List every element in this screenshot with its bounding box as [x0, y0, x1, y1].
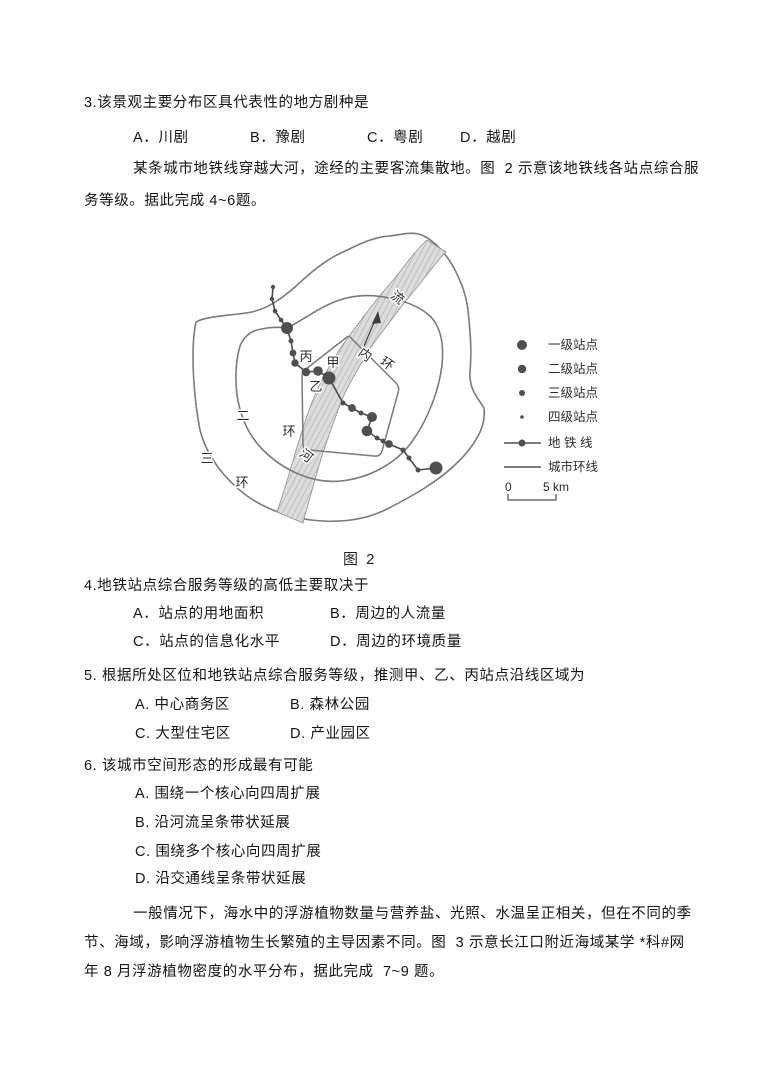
question-3-text: 3.该景观主要分布区具代表性的地方剧种是 — [84, 95, 369, 112]
q5-option-d: D. 产业园区 — [290, 726, 371, 743]
legend-level4-dot — [520, 415, 524, 419]
q6-option-d: D. 沿交通线呈条带状延展 — [135, 871, 306, 888]
question-6-text: 6. 该城市空间形态的形成最有可能 — [84, 758, 313, 775]
station-dot — [385, 440, 393, 448]
station-dot — [290, 350, 297, 357]
station-dot — [416, 468, 421, 473]
label-station-jia: 甲 — [326, 355, 339, 370]
scale-bar — [508, 494, 556, 500]
station-dot — [313, 366, 323, 376]
station-dot — [341, 401, 346, 406]
label-station-bing: 丙 — [299, 349, 312, 364]
station-dot — [323, 372, 336, 385]
label-station-yi: 乙 — [309, 379, 322, 394]
legend-level2-label: 二级站点 — [548, 362, 598, 376]
q4-option-b: B．周边的人流量 — [330, 606, 446, 623]
label-second-ring-1: 二 — [236, 408, 249, 423]
q6-option-a: A. 围绕一个核心向四周扩展 — [135, 786, 321, 803]
exam-page: { "q3": { "text": "3.该景观主要分布区具代表性的地方剧种是"… — [0, 0, 761, 1076]
station-dot — [270, 297, 274, 301]
station-dot — [362, 426, 373, 437]
q6-option-c: C. 围绕多个核心向四周扩展 — [135, 844, 321, 861]
station-dot — [430, 462, 443, 475]
q3-option-b: B．豫剧 — [250, 130, 306, 147]
station-dot — [407, 456, 412, 461]
label-second-ring-2: 环 — [282, 424, 295, 439]
scale-zero: 0 — [505, 480, 512, 494]
legend-level4-label: 四级站点 — [548, 410, 598, 424]
station-dot — [279, 318, 284, 323]
question-4-text: 4.地铁站点综合服务等级的高低主要取决于 — [84, 578, 369, 595]
q4-option-c: C．站点的信息化水平 — [133, 634, 280, 651]
legend-level1-dot — [517, 340, 527, 350]
figure-2-caption: 图 2 — [343, 548, 377, 569]
label-third-ring-2: 环 — [235, 475, 248, 490]
intro1-line1: 某条城市地铁线穿越大河，途经的主要客流集散地。图 2 示意该地铁线各站点综合服 — [133, 161, 699, 178]
q5-option-c: C. 大型住宅区 — [135, 726, 231, 743]
station-dot — [302, 368, 311, 377]
legend-metro-line-dot — [519, 440, 526, 447]
station-dot — [359, 411, 364, 416]
label-inner-ring-2: 环 — [378, 354, 397, 374]
label-third-ring-1: 三 — [200, 451, 213, 466]
q4-option-d: D．周边的环境质量 — [330, 634, 462, 651]
legend-level1-label: 一级站点 — [548, 338, 598, 352]
intro2-line2: 节、海域，影响浮游植物生长繁殖的主导因素不同。图 3 示意长江口附近海域某学 *… — [84, 935, 685, 952]
q3-option-d: D．越剧 — [460, 130, 516, 147]
intro2-line1: 一般情况下，海水中的浮游植物数量与营养盐、光照、水温呈正相关，但在不同的季 — [133, 906, 692, 923]
q3-option-c: C．粤剧 — [367, 130, 423, 147]
q6-option-b: B. 沿河流呈条带状延展 — [135, 815, 290, 832]
intro1-line2: 务等级。据此完成 4~6题。 — [84, 193, 266, 210]
q4-option-a: A．站点的用地面积 — [133, 606, 264, 623]
station-dot — [375, 436, 380, 441]
station-dot — [281, 322, 293, 334]
legend-metro-label: 地 铁 线 — [548, 436, 593, 450]
q5-option-a: A. 中心商务区 — [135, 697, 230, 714]
station-dot — [289, 339, 294, 344]
map-legend: 一级站点 二级站点 三级站点 四级站点 地 铁 线 城市环线 0 5 km — [504, 338, 599, 500]
legend-level3-label: 三级站点 — [548, 386, 598, 400]
station-dot — [367, 412, 377, 422]
station-dot — [291, 359, 298, 366]
station-dot — [273, 309, 278, 314]
station-dot — [381, 439, 386, 444]
subway-stations — [270, 285, 443, 475]
figure-2-map: 丙 甲 乙 内 环 二 环 三 环 流 河 一级站点 二级站点 三级站点 四级站… — [150, 225, 610, 537]
station-dot — [348, 404, 356, 412]
intro2-line3: 年 8 月浮游植物密度的水平分布，据此完成 7~9 题。 — [84, 964, 444, 981]
legend-ring-label: 城市环线 — [548, 459, 599, 474]
legend-level2-dot — [518, 365, 526, 373]
question-5-text: 5. 根据所处区位和地铁站点综合服务等级，推测甲、乙、丙站点沿线区域为 — [84, 668, 585, 685]
q5-option-b: B. 森林公园 — [290, 697, 370, 714]
station-dot — [401, 448, 406, 453]
legend-level3-dot — [519, 390, 525, 396]
q3-option-a: A．川剧 — [133, 130, 189, 147]
scale-value: 5 km — [543, 480, 569, 494]
station-dot — [271, 285, 275, 289]
